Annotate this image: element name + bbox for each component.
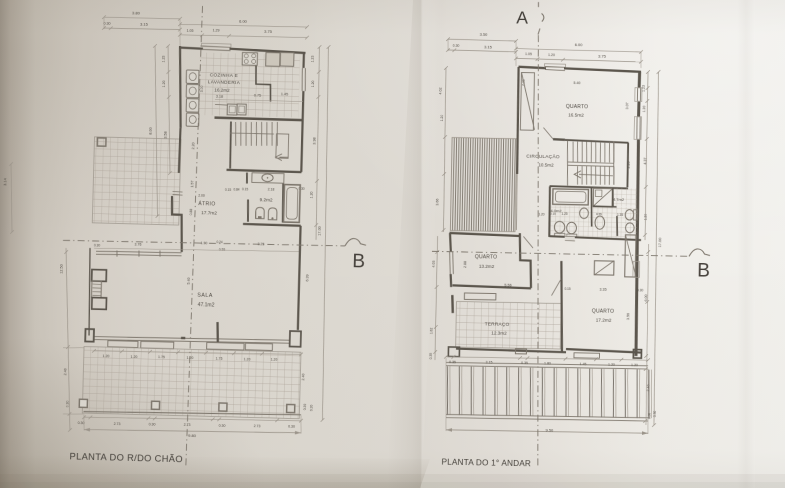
svg-text:0.30: 0.30: [65, 401, 69, 408]
svg-text:SALA: SALA: [197, 293, 213, 299]
svg-text:12.3m2: 12.3m2: [491, 330, 507, 335]
svg-text:3.98: 3.98: [312, 137, 316, 144]
svg-text:6.00: 6.00: [239, 19, 248, 24]
svg-text:1.75: 1.75: [158, 355, 165, 359]
svg-text:2.40: 2.40: [63, 368, 67, 375]
svg-text:COZINHA E: COZINHA E: [210, 72, 238, 78]
svg-text:1.35: 1.35: [617, 213, 624, 217]
svg-text:2.73: 2.73: [254, 424, 261, 428]
svg-text:16.5m2: 16.5m2: [568, 112, 584, 117]
svg-text:0.88: 0.88: [189, 209, 193, 216]
svg-text:3.75: 3.75: [264, 29, 273, 34]
svg-text:3.15: 3.15: [486, 361, 493, 365]
svg-text:3.15: 3.15: [140, 21, 149, 26]
svg-text:5.40: 5.40: [187, 277, 191, 284]
svg-text:0.30: 0.30: [309, 405, 313, 412]
svg-text:1.80: 1.80: [544, 362, 551, 366]
svg-text:2.88: 2.88: [463, 261, 467, 268]
svg-text:0.30: 0.30: [219, 423, 226, 427]
svg-text:13.2m2: 13.2m2: [479, 264, 495, 269]
svg-text:5.40: 5.40: [573, 81, 580, 85]
svg-text:0.15: 0.15: [564, 287, 571, 291]
svg-text:0.30: 0.30: [653, 411, 657, 418]
svg-text:1.20: 1.20: [271, 358, 278, 362]
svg-text:1.20: 1.20: [131, 355, 138, 359]
svg-text:1.20: 1.20: [548, 53, 555, 57]
svg-text:1.45: 1.45: [281, 92, 288, 96]
svg-text:0.35: 0.35: [429, 353, 433, 360]
svg-text:3.35: 3.35: [599, 287, 606, 291]
svg-text:0.15: 0.15: [242, 187, 249, 191]
svg-text:B: B: [697, 260, 710, 281]
svg-text:9.80: 9.80: [188, 433, 197, 438]
svg-text:QUARTO: QUARTO: [475, 254, 498, 260]
svg-text:3.80: 3.80: [132, 10, 141, 15]
svg-text:TERRAÇO: TERRAÇO: [485, 321, 510, 327]
svg-text:0.84: 0.84: [233, 188, 240, 192]
svg-text:3.18: 3.18: [216, 94, 223, 98]
svg-text:0.30: 0.30: [453, 44, 460, 48]
svg-text:LAVANDERIA: LAVANDERIA: [208, 79, 241, 85]
svg-text:1.20: 1.20: [103, 354, 110, 358]
svg-text:1.20: 1.20: [311, 80, 315, 87]
svg-text:1.20: 1.20: [309, 191, 313, 198]
svg-text:47.1m2: 47.1m2: [198, 302, 215, 308]
svg-text:QUARTO: QUARTO: [592, 308, 615, 314]
svg-text:17.7m2: 17.7m2: [201, 210, 217, 215]
svg-text:2.40: 2.40: [646, 384, 650, 391]
svg-text:0.30: 0.30: [288, 425, 295, 429]
svg-text:9.2m2: 9.2m2: [259, 197, 273, 202]
svg-text:3.75: 3.75: [598, 53, 607, 58]
svg-text:12.50: 12.50: [59, 264, 63, 274]
svg-text:2.20: 2.20: [626, 161, 630, 168]
svg-text:3.56: 3.56: [626, 313, 630, 320]
svg-text:2.18: 2.18: [268, 187, 275, 191]
svg-text:0.55: 0.55: [219, 247, 226, 251]
svg-text:6.00: 6.00: [575, 42, 584, 47]
svg-text:3.58: 3.58: [163, 131, 167, 138]
svg-text:0.15: 0.15: [225, 188, 232, 192]
svg-text:0.30: 0.30: [103, 22, 110, 26]
svg-text:17.00: 17.00: [658, 238, 662, 248]
svg-text:9.50: 9.50: [545, 428, 554, 433]
svg-text:0.30: 0.30: [78, 421, 85, 425]
svg-text:ÁTRIO: ÁTRIO: [198, 200, 215, 207]
svg-text:4.7m2: 4.7m2: [613, 197, 625, 202]
svg-text:2.73: 2.73: [114, 422, 121, 426]
svg-text:1.05: 1.05: [186, 29, 193, 33]
svg-text:0.35: 0.35: [521, 361, 528, 365]
svg-text:4.37: 4.37: [643, 157, 647, 164]
svg-text:1.20: 1.20: [643, 214, 647, 221]
svg-text:2.40: 2.40: [301, 373, 305, 380]
svg-text:17.2m2: 17.2m2: [596, 317, 612, 322]
svg-text:3.15: 3.15: [484, 44, 493, 49]
svg-text:0.15: 0.15: [550, 212, 556, 216]
svg-text:4.02: 4.02: [438, 87, 442, 94]
svg-text:3.50: 3.50: [480, 32, 489, 37]
svg-text:1.23: 1.23: [641, 85, 645, 92]
svg-text:1.90: 1.90: [201, 241, 208, 245]
svg-text:1.23: 1.23: [310, 56, 314, 63]
svg-text:1.23: 1.23: [161, 56, 165, 63]
svg-text:1.29: 1.29: [213, 28, 220, 32]
svg-text:1.20: 1.20: [162, 80, 166, 87]
svg-text:1.57: 1.57: [190, 180, 194, 187]
svg-text:1.20: 1.20: [538, 212, 545, 216]
svg-text:1.20: 1.20: [440, 115, 444, 122]
svg-text:1.20: 1.20: [608, 363, 615, 367]
svg-text:1.20: 1.20: [642, 105, 646, 112]
svg-text:2.20: 2.20: [191, 142, 195, 149]
svg-text:1.25: 1.25: [561, 212, 568, 216]
svg-text:0.75: 0.75: [254, 93, 261, 97]
svg-text:A: A: [516, 7, 528, 27]
svg-text:8.00: 8.00: [148, 127, 152, 134]
svg-text:PLANTA DO 1° ANDAR: PLANTA DO 1° ANDAR: [441, 457, 531, 468]
svg-text:QUARTO: QUARTO: [566, 104, 589, 110]
svg-text:3.66: 3.66: [435, 198, 439, 205]
svg-text:0.35: 0.35: [449, 360, 456, 364]
svg-text:3.00: 3.00: [200, 85, 204, 92]
svg-text:1.45: 1.45: [580, 362, 587, 366]
svg-text:B: B: [352, 251, 365, 272]
svg-text:0.30: 0.30: [94, 243, 101, 247]
svg-text:2.00: 2.00: [198, 193, 205, 197]
svg-text:10.5m2: 10.5m2: [538, 162, 554, 167]
svg-text:1.62: 1.62: [429, 327, 433, 334]
svg-text:3.76: 3.76: [134, 242, 141, 246]
svg-text:17.00: 17.00: [317, 226, 321, 236]
svg-text:6.39: 6.39: [305, 274, 309, 281]
svg-text:16.2m2: 16.2m2: [214, 87, 230, 92]
svg-text:1.75: 1.75: [216, 356, 223, 360]
svg-text:0.30: 0.30: [149, 422, 156, 426]
svg-text:1.20: 1.20: [631, 363, 638, 367]
svg-text:4.03: 4.03: [431, 260, 435, 267]
svg-text:3.14: 3.14: [3, 178, 7, 185]
svg-text:1.05: 1.05: [525, 52, 532, 56]
svg-text:6.00: 6.00: [644, 294, 648, 301]
svg-text:1.20: 1.20: [244, 357, 251, 361]
svg-text:0.30: 0.30: [303, 404, 307, 411]
svg-text:3.07: 3.07: [625, 102, 629, 109]
svg-text:0.30: 0.30: [637, 288, 644, 292]
